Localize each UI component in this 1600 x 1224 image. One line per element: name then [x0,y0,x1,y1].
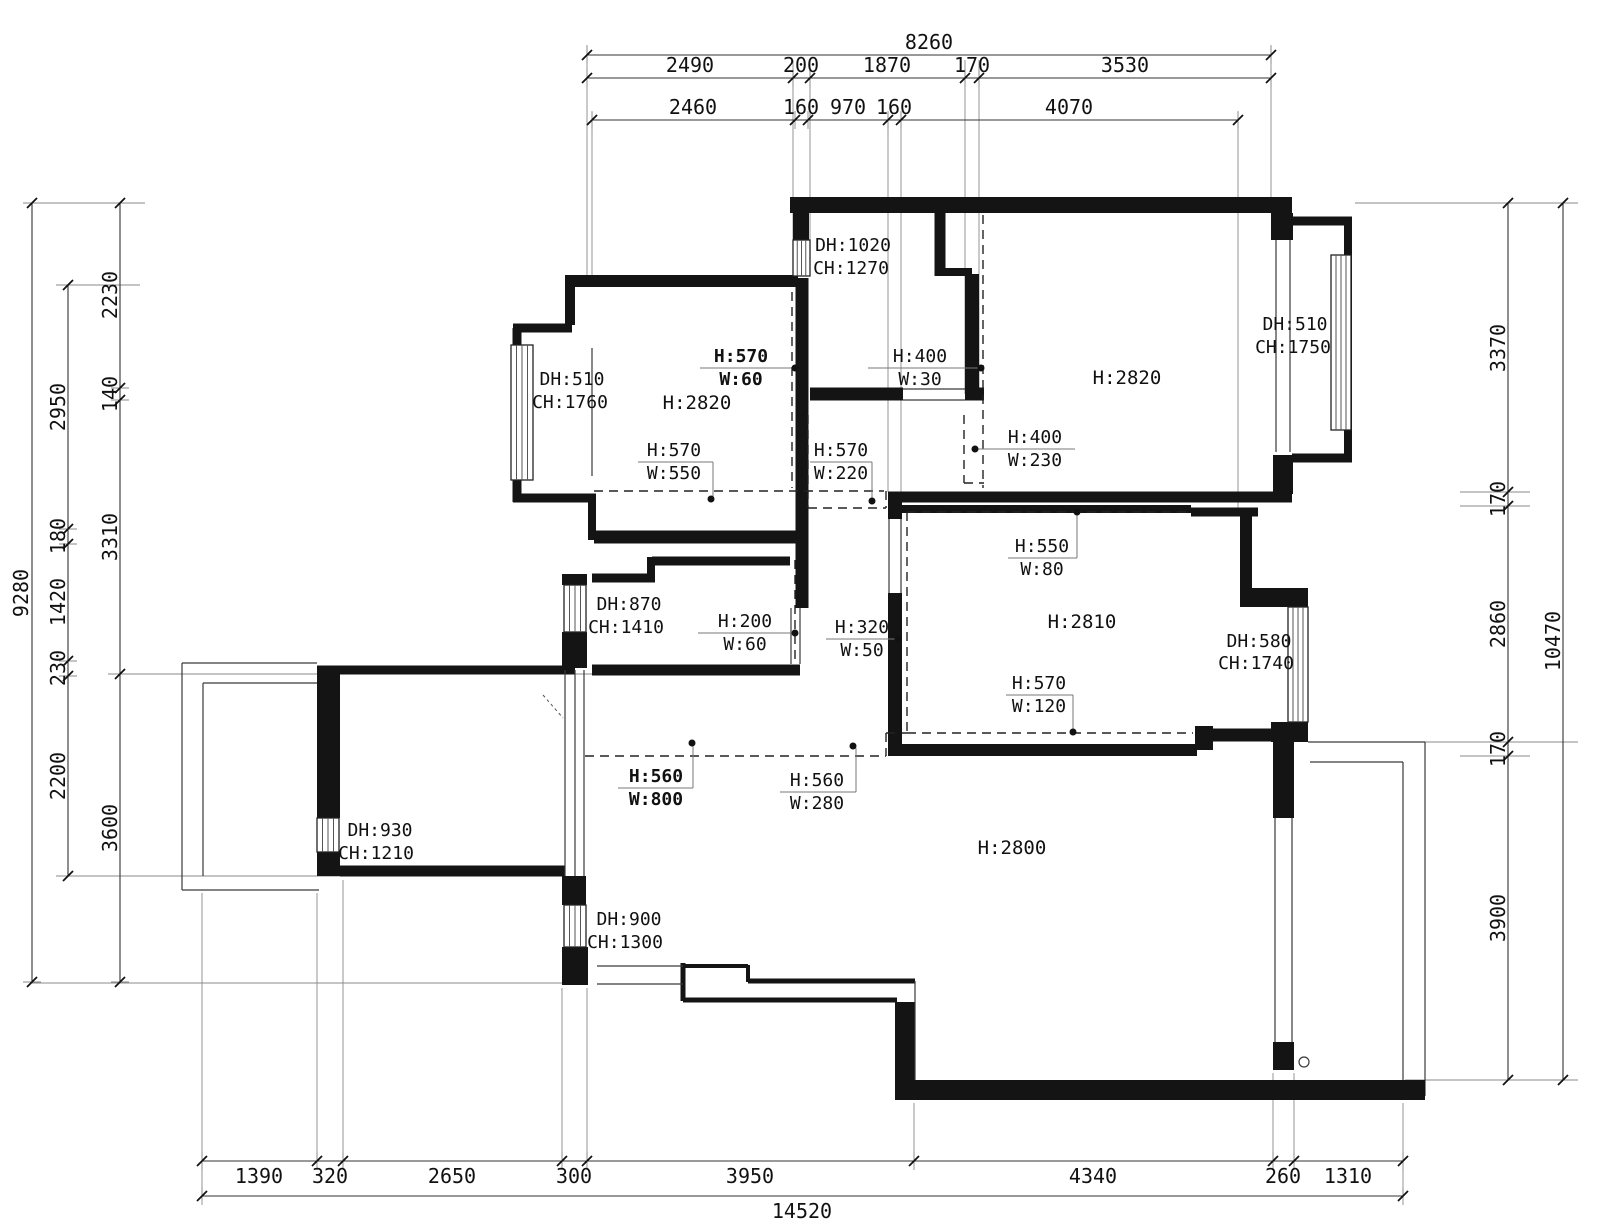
dim-label: 3530 [1101,53,1149,77]
window-icon [793,240,810,276]
balcony-outlines [182,663,1425,1096]
feature-label: W:800 [629,789,683,810]
feature-label: W:50 [840,640,883,661]
feature-label: W:550 [647,463,701,484]
dim-label: 970 [830,95,866,119]
dim-label: 300 [556,1164,592,1188]
window-icon [564,905,586,947]
feature-label: W:60 [719,369,762,390]
window-label: CH:1270 [813,258,889,279]
dim-label: 2950 [46,383,70,431]
window-label: CH:1210 [338,843,414,864]
feature-label: H:570 [814,440,868,461]
feature-label: H:550 [1015,536,1069,557]
dim-label: 3900 [1486,894,1510,942]
window-label: DH:510 [539,369,604,390]
feature-label: W:120 [1012,696,1066,717]
feature-label: W:230 [1008,450,1062,471]
feature-label: W:60 [723,634,766,655]
floor-plan-canvas: 8260 2490 200 1870 170 3530 2460 160 970… [0,0,1600,1224]
window-icon [564,585,586,632]
window-label: DH:510 [1262,314,1327,335]
dim-label: 160 [876,95,912,119]
dim-label: 320 [312,1164,348,1188]
window-label: CH:1750 [1255,337,1331,358]
dim-label: 1310 [1324,1164,1372,1188]
dim-label: 170 [1486,481,1510,517]
dim-label: 180 [46,518,70,554]
dim-label: 1420 [46,578,70,626]
feature-label: H:570 [647,440,701,461]
dim-label: 2860 [1486,600,1510,648]
feature-label: H:560 [629,766,683,787]
feature-label: H:400 [1008,427,1062,448]
dim-label: 4340 [1069,1164,1117,1188]
dim-label: 160 [783,95,819,119]
window-label: CH:1410 [588,617,664,638]
dim-label: 2200 [46,752,70,800]
window-label: DH:870 [596,594,661,615]
feature-label: W:30 [898,369,941,390]
dim-label: 1870 [863,53,911,77]
dimension-labels: 8260 2490 200 1870 170 3530 2460 160 970… [9,30,1565,1223]
window-icon [511,345,533,480]
feature-label: H:570 [1012,673,1066,694]
dim-label: 1390 [235,1164,283,1188]
window-label: DH:1020 [815,235,891,256]
window-label: CH:1760 [532,392,608,413]
window-label: DH:900 [596,909,661,930]
dim-label: 4070 [1045,95,1093,119]
dim-label: 3600 [98,804,122,852]
feature-label: W:280 [790,793,844,814]
windows-layer [317,240,1351,947]
feature-label: H:320 [835,617,889,638]
dim-label: 10470 [1541,611,1565,671]
feature-label: H:200 [718,611,772,632]
dim-label: 230 [46,650,70,686]
room-label: H:2810 [1048,611,1117,633]
window-labels: DH:510 CH:1760 DH:1020 CH:1270 DH:510 CH… [338,235,1331,953]
floor-plan-page: 8260 2490 200 1870 170 3530 2460 160 970… [0,0,1600,1224]
dim-label: 140 [98,376,122,412]
dim-label: 8260 [905,30,953,54]
dim-label: 2490 [666,53,714,77]
feature-label: H:560 [790,770,844,791]
room-label: H:2820 [1093,367,1162,389]
dim-label: 14520 [772,1199,832,1223]
window-label: DH:930 [347,820,412,841]
room-label: H:2820 [663,392,732,414]
dim-label: 260 [1265,1164,1301,1188]
dim-label: 170 [1486,731,1510,767]
dim-label: 2460 [669,95,717,119]
window-label: DH:580 [1226,631,1291,652]
dim-label: 9280 [9,569,33,617]
dim-label: 3370 [1486,324,1510,372]
dim-label: 2650 [428,1164,476,1188]
feature-label: H:400 [893,346,947,367]
window-icon [1331,255,1351,430]
dim-label: 2230 [98,271,122,319]
feature-label: H:570 [714,346,768,367]
room-label: H:2800 [978,837,1047,859]
window-label: CH:1740 [1218,653,1294,674]
dim-label: 200 [783,53,819,77]
feature-label: W:220 [814,463,868,484]
dim-label: 170 [954,53,990,77]
dim-label: 3310 [98,513,122,561]
window-icon [317,818,339,852]
dim-label: 3950 [726,1164,774,1188]
feature-label: W:80 [1020,559,1063,580]
window-label: CH:1300 [587,932,663,953]
